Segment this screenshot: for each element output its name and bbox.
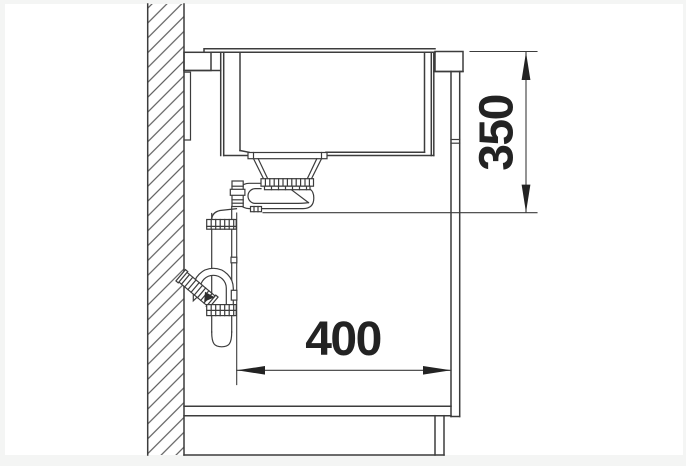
pipe-coupling-upper (207, 220, 237, 230)
trap-inlet-nut (230, 181, 245, 207)
pipe-clip-lower (231, 290, 237, 300)
dimension-400-label: 400 (305, 313, 381, 366)
technical-drawing-canvas: 350 400 (0, 0, 686, 466)
pipe-clip-upper (231, 257, 237, 263)
sink-installation-drawing: 350 400 (0, 0, 686, 466)
dimension-350-label: 350 (471, 95, 524, 171)
trap-drain-plug (251, 207, 262, 212)
wall-section-hatched (148, 4, 184, 455)
knurled-locknut (261, 179, 314, 190)
paper (5, 4, 683, 455)
pipe-coupling-lower (207, 305, 237, 316)
